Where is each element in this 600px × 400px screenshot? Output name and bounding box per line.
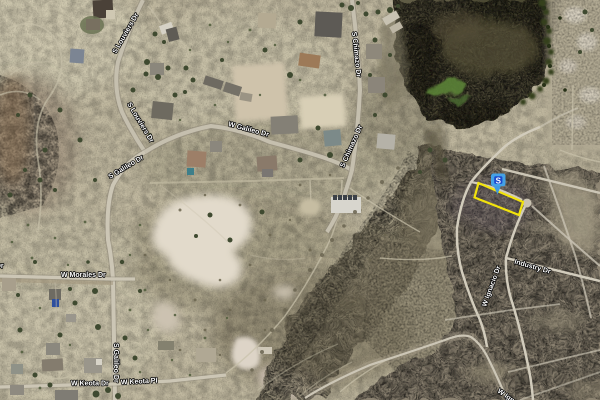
svg-text:S Galileo Dr: S Galileo Dr xyxy=(112,343,119,383)
svg-text:W Morales Dr: W Morales Dr xyxy=(61,272,106,279)
svg-text:S: S xyxy=(496,176,502,185)
svg-text:W Keota Dr: W Keota Dr xyxy=(71,381,109,388)
svg-text:s Dr: s Dr xyxy=(0,263,4,270)
